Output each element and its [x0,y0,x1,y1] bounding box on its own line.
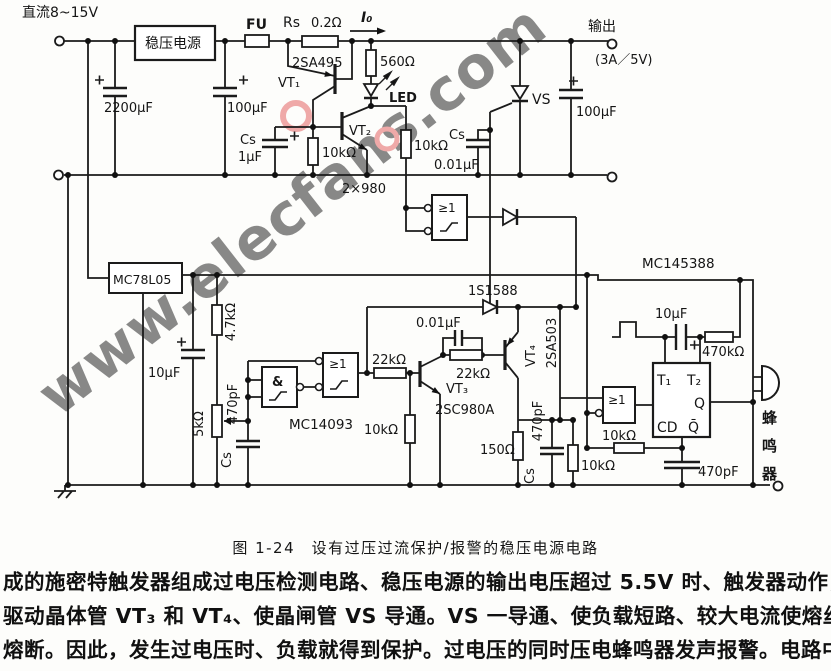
cs1-value-label: 1μF [238,150,262,165]
c2200-label: 2200μF [104,101,153,116]
r10k-c-label: 10kΩ [364,423,398,438]
c10u-b-label: 10μF [655,307,687,322]
led-label: LED [389,91,417,106]
qbar-pin-label: Q̄ [688,418,699,436]
led-symbol [364,84,378,96]
r10k-d-label: 10kΩ [602,429,636,444]
body-text-line3: 熔断。因此，发生过电压时、负载就得到保护。过电压的同时压电蜂鸣器发声报警。电路中… [3,633,829,667]
i0-label: I₀ [361,10,372,26]
gate1-label: ≥1 [438,201,456,215]
r4k7-label: 4.7kΩ [224,303,239,341]
cd-pin-label: CD [657,420,678,436]
shunt-resistor-rs [302,36,338,47]
resistor-560 [366,50,376,76]
dc-input-label: 直流8~15V [22,4,98,21]
rs-value-label: 0.2Ω [311,16,342,31]
resistor-10k-b [401,130,411,158]
c10u-a-label: 10μF [148,366,180,381]
gate1-output-diode [503,209,517,225]
c100out-label: 100μF [576,105,617,120]
r22k-b-label: 22kΩ [456,367,490,382]
potentiometer-5k [212,405,222,437]
scanned-circuit-page: www.elecfans.com [0,0,831,671]
r22k-a-label: 22kΩ [372,353,406,368]
vt4-part-label: 2SA503 [545,318,560,368]
r10k-b-label: 10kΩ [414,139,448,154]
watermark-ring-icon [283,103,309,129]
body-text: 成的施密特触发器组成过电压检测电路、稳压电源的输出电压超过 5.5V 时、触发器… [3,565,829,667]
c470p-c-label: 470pF [698,465,739,480]
body-text-line1: 成的施密特触发器组成过电压检测电路、稳压电源的输出电压超过 5.5V 时、触发器… [3,565,829,599]
pair980-label: 2×980 [342,182,386,197]
c470p-b-label: 470pF [531,401,546,442]
r10k-a-label: 10kΩ [322,146,356,161]
resistor-470k [705,332,733,342]
resistor-22k-b [450,350,482,360]
vt3-label: VT₃ [446,382,468,397]
resistor-22k-a [374,368,406,378]
cs4-label: Cs [523,468,538,484]
cs3-label: Cs [220,452,235,468]
r150-label: 150Ω [480,443,515,458]
r560-label: 560Ω [380,55,415,70]
fuse-symbol [245,35,269,47]
thyristor-vs-symbol [512,86,528,99]
gate4-label: ≥1 [608,393,626,407]
output-plus-terminal [608,40,617,49]
dc-input-plus-terminal [55,37,64,46]
resistor-10k-c [405,415,415,443]
r470k-label: 470kΩ [702,345,744,360]
mc14093-label: MC14093 [289,417,353,433]
mc78l05-label: MC78L05 [113,272,171,287]
c001-b-label: 0.01μF [416,316,461,331]
d1-label: 1S1588 [468,284,518,299]
r5k-label: 5kΩ [192,411,207,437]
gate2-label: & [272,375,283,390]
resistor-10k-a [308,138,318,165]
r10k-e-label: 10kΩ [581,459,615,474]
output-rating-label: (3A／5V) [595,53,652,68]
t1-pin-label: T₁ [656,373,671,389]
figure-caption: 图 1-24 设有过压过流保护/报警的稳压电源电路 [0,537,831,558]
vt2-label: VT₂ [349,124,371,139]
body-text-line2: 驱动晶体管 VT₃ 和 VT₄、使晶闸管 VS 导通。VS 一导通、使负载短路、… [3,599,829,633]
output-minus-terminal [608,173,617,182]
cs2-label: Cs [449,128,465,143]
q-pin-label: Q [694,396,705,412]
c470p-a-label: 470pF [226,384,241,425]
vs-label: VS [532,92,551,108]
resistor-10k-d [614,443,644,453]
resistor-10k-e [568,445,578,471]
buzzer-symbol [762,366,779,400]
fuse-label: FU [246,17,267,33]
t2-pin-label: T₂ [686,373,701,389]
vt1-label: VT₁ [278,76,300,91]
cs1-label: Cs [240,133,256,148]
dc-input-minus-terminal [54,171,63,180]
regulator-label: 稳压电源 [145,36,201,52]
cs2-value-label: 0.01μF [434,158,479,173]
vt4-label: VT₄ [524,345,539,367]
output-label: 输出 [588,19,616,35]
mc145388-label: MC145388 [642,256,715,272]
buzzer-label: 蜂鸣器 [762,404,779,488]
c100in-label: 100μF [227,101,268,116]
vt3-part-label: 2SC980A [435,403,494,418]
circuit-schematic: www.elecfans.com [0,0,831,535]
resistor-4k7 [212,305,222,335]
gate3-label: ≥1 [329,357,347,371]
rs-label: Rs [283,15,300,31]
vt1-part-label: 2SA495 [292,56,342,71]
current-arrow-i0 [377,28,386,35]
